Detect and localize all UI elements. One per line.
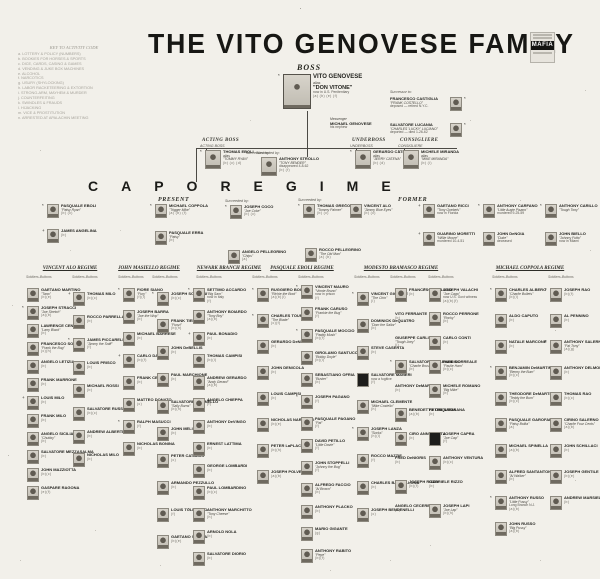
badge-word: MAFIA <box>531 41 554 50</box>
member-text: MICHAEL SPINELLA(a)(b) <box>509 444 548 453</box>
member-photo <box>27 414 39 428</box>
member-activity-codes: (f) <box>315 425 355 429</box>
member-text: JOHN BIELLO"Johnny Futto"now in Miami <box>559 232 586 244</box>
member-photo <box>301 505 313 519</box>
member-entry: ROCCO PARRELLA(b) <box>68 315 124 329</box>
member-activity-codes: (b)(c) <box>41 473 76 477</box>
member-text: ALDO CAPUTO(b) <box>509 314 538 323</box>
member-activity-codes: (b) <box>443 392 480 396</box>
member-photo <box>357 481 369 495</box>
mafia-book-badge: MAFIA <box>530 32 555 63</box>
member-text: DOMINICK DeQUATRO"Dom the Sailor"(b) <box>371 319 414 331</box>
member-text: ANDREW MARSIELLO(b) <box>564 496 600 505</box>
member-photo <box>350 204 362 218</box>
member-entry: ANGELO LETIZIA(b) <box>22 360 74 374</box>
member-activity-codes: (b)(f) <box>315 557 351 561</box>
member-photo <box>301 351 313 365</box>
member-photo <box>495 522 507 536</box>
member-entry: AL PENNINO(b) <box>545 314 589 328</box>
legend-items: a. LOTTERY & POLICY (NUMBERS)b. BOOKIES … <box>18 52 130 121</box>
member-entry: LOUIS CAMPISI(b) <box>252 392 301 406</box>
member-text: CARLO CONTI(b) <box>443 336 471 345</box>
member-photo <box>257 418 269 432</box>
member-photo <box>395 288 407 302</box>
member-photo <box>301 373 313 387</box>
member-text: ALFREDO FACCIO"Al Brown"(b) <box>315 483 351 495</box>
member-photo <box>123 442 135 456</box>
member-photo <box>357 454 369 468</box>
asterisk-mark: * <box>118 420 121 425</box>
member-activity-codes: (b) <box>564 449 598 453</box>
member-photo <box>230 205 242 219</box>
member-entry: ARNOLD NOLA(b) <box>188 530 237 544</box>
member-photo <box>123 310 135 324</box>
member-photo <box>123 376 135 390</box>
member-photo <box>257 366 269 380</box>
asterisk-mark: * <box>345 204 348 209</box>
member-activity-codes: (b) <box>41 401 64 405</box>
member-text: GEORGE LOMBARDI(b) <box>207 464 247 473</box>
member-photo <box>257 392 269 406</box>
member-text: MICHELE MIRANDAalias"MIKE MIRANDA"(b) (i… <box>421 150 459 166</box>
asterisk-mark: * <box>68 338 71 343</box>
member-activity-codes: (b)(f) <box>315 337 354 341</box>
member-activity-codes: (f) <box>315 400 350 404</box>
member-text: FRANCESCO CASTIGLIA"FRANK COSTELLO"depos… <box>390 97 448 109</box>
member-entry: *ANTHONY MARCHITTO"Tony Cheese"(h) <box>188 508 252 522</box>
member-activity-codes: (a)(b) <box>207 384 247 388</box>
soldiers-sublabel: Soldiers-Buttons <box>548 275 574 279</box>
member-entry: MICHELE ROMANO"Big Mike"(b) <box>424 384 480 398</box>
successor-entry: FRANCESCO CASTIGLIA"FRANK COSTELLO"depos… <box>390 97 467 111</box>
member-entry: JOSEPH LAPI"Joe Lap"(b)(h) <box>424 504 469 518</box>
member-text: MICHAEL COPPOLA"Trigger Mike"(a) (b) (f) <box>169 204 208 216</box>
member-entry: *JOSEPH VALACHI"Joe Cago"now U.S. Govt w… <box>424 288 478 304</box>
member-photo <box>429 384 441 398</box>
member-photo <box>550 470 562 484</box>
asterisk-mark: * <box>490 288 493 293</box>
member-entry: *MICHELE MIRANDAalias"MIKE MIRANDA"(b) (… <box>398 150 459 169</box>
badge-line <box>533 52 552 54</box>
soldiers-sublabel: Soldiers-Buttons <box>390 275 416 279</box>
plus-mark: + <box>22 396 25 401</box>
member-text: CHARLES ALBERO"Charlie Bullets"(b)(i) <box>509 288 546 300</box>
member-text: SEBASTIANO OFRIA"Buster"(b) <box>315 373 355 385</box>
member-activity-codes: (b) <box>443 320 479 324</box>
member-text: JOHN STOPPELLI"Johnny the Bug"(f) <box>315 461 349 473</box>
member-photo <box>193 486 205 500</box>
member-text: PASQUALE PAGANO"Pat"(f) <box>315 417 355 429</box>
member-entry: THOMAS RAO(b)(c) <box>545 392 591 406</box>
member-photo <box>193 530 205 544</box>
asterisk-mark: * <box>278 74 281 79</box>
member-entry: THOMAS CAMPISI(b)(i) <box>188 354 242 368</box>
member-entry: ANTHONY DELMORE(b) <box>545 366 600 380</box>
member-photo <box>27 342 39 356</box>
member-entry: PAUL CORREALE"Paulie Ham"(b)(c) <box>424 360 477 374</box>
member-photo <box>301 549 313 563</box>
member-entry: ANTHONY PLACKO(b) <box>296 505 353 519</box>
member-text: FRED DeNIGRIS(b) <box>395 456 426 465</box>
member-entry: JOHN MAZZIOTTA(b)(c) <box>22 468 76 482</box>
member-text: ANTHONY DELMORE(b) <box>564 366 600 375</box>
member-text: PAUL CORREALE"Paulie Ham"(b)(c) <box>443 360 477 372</box>
member-entry: *ANTHONY CARILLO"Tough Tony" <box>540 204 598 218</box>
member-activity-codes: (b) <box>87 366 116 370</box>
member-activity-codes: (b) (f) <box>279 169 319 173</box>
member-photo <box>193 508 205 522</box>
member-photo <box>157 373 169 387</box>
member-text: ANTHONY VENTURA(b)(c) <box>443 456 483 465</box>
member-photo <box>545 204 557 218</box>
member-photo <box>550 444 562 458</box>
member-entry: *PASQUALE MOCCIO"Paddy Mush"(b)(f) <box>296 329 354 343</box>
member-text: VITO FERRANTE(b) <box>395 312 427 321</box>
asterisk-mark: * <box>478 204 481 209</box>
member-text: ERNEST LATTIMA(b) <box>207 442 242 451</box>
member-activity-codes: (b) <box>509 319 538 323</box>
asterisk-mark: * <box>252 314 255 319</box>
connector-line <box>196 148 197 182</box>
asterisk-mark: * <box>200 150 203 155</box>
member-text: ANTHONY RABITO"Pepe"(b)(f) <box>315 549 351 561</box>
member-text: FRANK CARUSO"Frankie the Bug"(f) <box>315 307 347 319</box>
member-entry: CIRINO SALERNO"Charlie Four Cents"(a)(b) <box>545 418 599 432</box>
member-activity-codes: (b) (i) <box>421 162 459 166</box>
member-activity-codes: (b) <box>87 458 119 462</box>
member-text: MARIO GIGANTE(g) <box>315 527 348 536</box>
member-text: THOMAS RAO(b)(c) <box>564 392 591 401</box>
member-activity-codes: (a)(g) <box>564 348 600 352</box>
member-entry: CARLO CONTI(b) <box>424 336 471 350</box>
member-entry: *SETTIMO ACCARDO"Big Sam"now in Italy(f) <box>188 288 246 304</box>
asterisk-mark: * <box>464 123 467 128</box>
member-text: JOHN RUSSO"Big Pussy"(a)(b) <box>509 522 535 534</box>
member-entry: NATALE MARCONE(b) <box>490 340 546 354</box>
member-photo <box>550 418 562 432</box>
member-text: NICHOLAS BONINA(b) <box>137 442 175 451</box>
member-note: murdered 10-4-51 <box>437 240 475 244</box>
member-text: VINCENT ALO"Jimmy Blue Eyes"(b) (c) <box>364 204 392 216</box>
member-photo <box>155 204 167 218</box>
member-photo <box>483 204 495 218</box>
member-entry: *VINCENT MAURO"Vinnie Bruno"now in priso… <box>296 285 349 301</box>
member-text: PASQUALE ERRA"Patsy"(b) <box>169 231 203 243</box>
member-entry: ANTHONY VENTURA(b)(c) <box>424 456 483 470</box>
succeeded-by-label: Succeeded by: <box>298 198 322 202</box>
member-text: JOSEPH CAPRA"Joe Cap"(f) <box>443 432 475 444</box>
member-activity-codes: (b) <box>87 435 123 439</box>
member-entry: +GAETANO RICCI"Tony Goebels"now in Flori… <box>418 204 469 218</box>
member-text: THOMAS CAMPISI(b)(i) <box>207 354 242 363</box>
member-photo <box>495 366 507 380</box>
member-name: NATALE MARCONE <box>509 340 546 345</box>
member-text: ARNOLD NOLA(b) <box>207 530 237 539</box>
asterisk-mark: * <box>390 360 393 365</box>
member-photo <box>73 361 85 375</box>
member-photo <box>550 496 562 510</box>
member-photo <box>357 400 369 414</box>
member-photo <box>193 464 205 478</box>
member-photo <box>123 420 135 434</box>
member-entry: VITO FERRANTE(b) <box>390 312 427 321</box>
member-photo <box>305 248 317 262</box>
member-entry: JOHN RUSSO"Big Pussy"(a)(b) <box>490 522 535 536</box>
member-activity-codes: (b)(c) <box>443 461 483 465</box>
member-photo <box>450 123 462 137</box>
soldiers-sublabel: Soldiers-Buttons <box>118 275 144 279</box>
member-text: ANTHONY SALERNO"Fat Tony"(a)(g) <box>564 340 600 352</box>
member-photo <box>429 288 441 302</box>
member-name: JOSEPH PAGANO <box>315 395 350 400</box>
legend-item: n. ARRESTED AT APALACHIN MEETING <box>18 116 130 121</box>
member-entry: ALDO CAPUTO(b) <box>490 314 538 328</box>
asterisk-mark: * <box>42 204 45 209</box>
member-photo <box>123 332 135 346</box>
member-activity-codes: (b) <box>564 319 589 323</box>
asterisk-mark: * <box>545 340 548 345</box>
member-photo <box>193 288 205 302</box>
member-activity-codes: (b) <box>429 485 463 489</box>
member-entry: JOHN BIELLO"Johnny Futto"now in Miami <box>540 232 586 246</box>
member-activity-codes: (f) <box>315 447 345 451</box>
section-label: ACTING BOSS <box>202 138 239 143</box>
member-note: now in Florida <box>437 212 469 216</box>
member-photo <box>483 232 495 246</box>
member-photo <box>261 157 277 176</box>
member-text: JOSEPH LAPI"Joe Lap"(b)(h) <box>443 504 469 516</box>
member-activity-codes: (b) <box>509 345 546 349</box>
member-entry: ANDREW ALBERTI(b) <box>68 430 123 444</box>
asterisk-mark: * <box>464 97 467 102</box>
member-activity-codes: (b) <box>271 345 311 349</box>
member-activity-codes: (a) <box>242 258 286 262</box>
paper-noise <box>0 0 1 1</box>
member-text: ANTHONY RUSSO"Little Pussy"Long Branch N… <box>509 496 544 512</box>
member-activity-codes: (a) (b) <box>319 256 361 260</box>
member-photo <box>495 340 507 354</box>
member-photo <box>495 288 507 302</box>
member-activity-codes: (b) <box>207 469 247 473</box>
member-photo <box>403 150 419 169</box>
member-text: CIRINO SALERNO"Charlie Four Cents"(a)(b) <box>564 418 599 430</box>
member-photo <box>257 288 269 302</box>
member-alias: "Tough Tony" <box>559 209 598 213</box>
asterisk-mark: * <box>490 496 493 501</box>
regime-header: MICHAEL COPPOLA REGIME <box>478 266 582 271</box>
member-text: JOSEPH COCO"Joe Coke"(b) (c) <box>244 205 273 217</box>
member-photo <box>228 250 240 264</box>
member-text: JOHN DeNOIA"Duke"deceased <box>497 232 524 244</box>
succeeded-by-label: Succeeded by: <box>225 199 249 203</box>
member-photo <box>157 481 169 495</box>
member-text: ROCCO PERRONE"Rocky"(b) <box>443 312 479 324</box>
member-activity-codes: (b) <box>371 327 414 331</box>
member-activity-codes: (b)(h) <box>443 512 469 516</box>
member-photo <box>47 229 59 243</box>
member-activity-codes: (b) (c) <box>61 212 96 216</box>
member-entry: +GUARINO MORETTI"Willie Moore"murdered 1… <box>418 232 475 246</box>
member-photo <box>550 314 562 328</box>
member-activity-codes: (b) <box>61 234 97 238</box>
member-photo <box>429 336 441 350</box>
member-name: ANTHONY DELMORE <box>564 366 600 371</box>
member-entry: JOHN MELI(b) <box>152 427 193 441</box>
member-entry: *JOSEPH PAGANO(f) <box>296 395 350 409</box>
member-photo <box>357 319 369 333</box>
member-text: ANTHONY DeVINGO(b) <box>207 420 246 429</box>
asterisk-mark: * <box>225 205 228 210</box>
member-photo <box>193 552 205 566</box>
page-title: THE VITO GENOVESE FAMILY <box>148 28 575 60</box>
member-name: ANGELO CHIEPPA <box>207 398 243 403</box>
member-photo <box>123 354 135 368</box>
member-activity-codes: (b)(c) <box>87 412 126 416</box>
member-photo <box>123 288 135 302</box>
member-activity-codes: (b) <box>207 425 246 429</box>
member-activity-codes: (b)(e) <box>564 475 599 479</box>
member-photo <box>395 432 407 446</box>
member-text: SALVATORE DIORIO(b) <box>207 552 246 561</box>
member-text: GAETANO RICCI"Tony Goebels"now in Florid… <box>437 204 469 216</box>
member-photo <box>157 400 169 414</box>
section-label: CONSIGLIERE <box>400 138 438 143</box>
member-photo <box>545 232 557 246</box>
member-photo <box>257 314 269 328</box>
member-entry: ANDREW GERARDO"Andy Gerard"(a)(b) <box>188 376 247 390</box>
regime-header: MODESTO BRAMASCO REGIME <box>355 266 447 271</box>
member-text: NICHOLAS MILO(b) <box>87 453 119 462</box>
member-activity-codes: (b)(f) <box>564 293 590 297</box>
succeeded-by-label: UNDERBOSS <box>350 144 373 148</box>
boss-photo <box>283 74 311 109</box>
member-photo <box>193 376 205 390</box>
messenger-note: his nephew <box>330 126 372 130</box>
genovese-family-chart: THE VITO GENOVESE FAMILY MAFIA KEY TO AC… <box>0 0 600 579</box>
member-activity-codes: (b) <box>137 337 176 341</box>
asterisk-mark: * <box>150 204 153 209</box>
member-text: ANTHONY MARCHITTO"Tony Cheese"(h) <box>207 508 252 520</box>
asterisk-mark: * <box>540 204 543 209</box>
member-photo <box>303 204 315 218</box>
asterisk-mark: * <box>188 508 191 513</box>
asterisk-mark: * <box>296 285 299 290</box>
successor-label: Successor to: <box>390 90 412 94</box>
regime-header: JOHN MASIELLO REGIME <box>113 266 185 271</box>
activity-code-legend: KEY TO ACTIVITY CODE a. LOTTERY & POLICY… <box>18 45 130 121</box>
member-activity-codes: (b) <box>87 389 119 393</box>
member-photo <box>423 204 435 218</box>
member-text: PAUL LOMBARDINO(b)(c) <box>207 486 246 495</box>
member-activity-codes: (b) <box>137 447 175 451</box>
member-entry: ERNEST LATTIMA(b) <box>188 442 242 456</box>
member-photo <box>27 396 39 410</box>
soldiers-sublabel: Soldiers-Buttons <box>428 275 454 279</box>
member-activity-codes: (a)(b) <box>509 530 535 534</box>
member-entry: *JOSEPH RAO(b)(f) <box>545 288 590 302</box>
member-photo <box>357 427 369 441</box>
plus-mark: + <box>418 204 421 209</box>
member-text: ANTHONY PLACKO(b) <box>315 505 353 514</box>
member-activity-codes: (b) (c) (d) <box>223 162 254 166</box>
member-activity-codes: (c) <box>371 513 414 517</box>
member-entry: JOSEPH CAPRA"Joe Cap"(f) <box>424 432 475 446</box>
member-photo <box>123 398 135 412</box>
member-entry: FRANK MILO(b) <box>22 414 66 428</box>
member-entry: PASQUALE ERRA"Patsy"(b) <box>150 231 203 245</box>
member-text: JOSEPH GENTILE(b)(e) <box>564 470 599 479</box>
badge-line <box>533 34 552 36</box>
member-photo <box>355 150 371 169</box>
member-entry: ANTHONY STROLLO"TONY BENDER"disappeared … <box>256 157 319 176</box>
former-header: FORMER <box>398 197 427 203</box>
member-text: JAMES ANGELINA(b) <box>61 229 97 238</box>
member-text: PETER SABIA(b) <box>429 408 456 417</box>
member-activity-codes: (b) <box>207 557 246 561</box>
member-photo <box>301 285 313 299</box>
member-text: ANTHONY BOIARDO"Tony Boy"(a)(b) <box>207 310 247 322</box>
member-photo <box>205 150 221 169</box>
member-photo <box>73 338 85 352</box>
member-name: ANDREW MARSIELLO <box>564 496 600 501</box>
member-entry: ANTHONY DeVINGO(b) <box>188 420 246 434</box>
member-photo <box>301 461 313 475</box>
successor-entry: SALVATORE LUCANIA"CHARLES 'LUCKY' LUCIAN… <box>390 123 467 137</box>
member-photo <box>357 373 369 387</box>
member-text: PASQUALE MOCCIO"Paddy Mush"(b)(f) <box>315 329 354 341</box>
member-text: ANTHONY CARFANO"Little Augie Pisano"murd… <box>497 204 538 216</box>
asterisk-mark: * <box>490 366 493 371</box>
member-entry: GASPARE RAGONA(e)(f) <box>22 486 79 500</box>
member-activity-codes: (b) <box>395 317 427 321</box>
member-photo <box>27 468 39 482</box>
member-photo <box>157 319 169 333</box>
member-name: ERNEST LATTIMA <box>207 442 242 447</box>
member-text: GABRIELE RIZZO(b) <box>429 480 463 489</box>
member-entry: MICHAEL SPINELLA(a)(b) <box>490 444 548 458</box>
member-activity-codes: (b)(h) <box>171 327 196 331</box>
member-photo <box>395 480 407 494</box>
member-entry: MICHAEL BARRESE(b) <box>118 332 176 346</box>
member-name: ANTHONY PLACKO <box>315 505 353 510</box>
member-photo <box>301 483 313 497</box>
member-photo <box>157 427 169 441</box>
member-text: GASPARE RAGONA(e)(f) <box>41 486 79 495</box>
member-photo <box>27 486 39 500</box>
member-entry: +THOMAS MILO(b)(c) <box>68 292 115 306</box>
member-entry: JOSEPH GENTILE(b)(e) <box>545 470 599 484</box>
member-activity-codes: (b)(c) <box>443 368 477 372</box>
soldiers-sublabel: Soldiers-Buttons <box>298 275 324 279</box>
member-entry: FRANK CARUSO"Frankie the Bug"(f) <box>296 307 347 321</box>
caporegime-banner: CAPOREGIME <box>88 178 414 194</box>
member-entry: JOHN SCHILLACI(b) <box>545 444 598 458</box>
member-entry: FRED DeNIGRIS(b) <box>390 456 426 465</box>
member-text: MICHAEL BARRESE(b) <box>137 332 176 341</box>
asterisk-mark: * <box>152 292 155 297</box>
member-activity-codes: (c)(f) <box>271 322 309 326</box>
member-text: FRANK MILO(b) <box>41 414 66 423</box>
member-activity-codes: (a)(b) <box>509 449 548 453</box>
member-name: FRANK MARRONE <box>41 378 77 383</box>
member-entry: ANDREW MARSIELLO(b) <box>545 496 600 510</box>
member-text: ANDREW GERARDO"Andy Gerard"(a)(b) <box>207 376 247 388</box>
plus-mark: + <box>68 292 71 297</box>
member-photo <box>301 439 313 453</box>
member-entry: ANTHONY RABITO"Pepe"(b)(f) <box>296 549 351 563</box>
member-name: JOHN SCHILLACI <box>564 444 598 449</box>
member-photo <box>395 408 407 422</box>
